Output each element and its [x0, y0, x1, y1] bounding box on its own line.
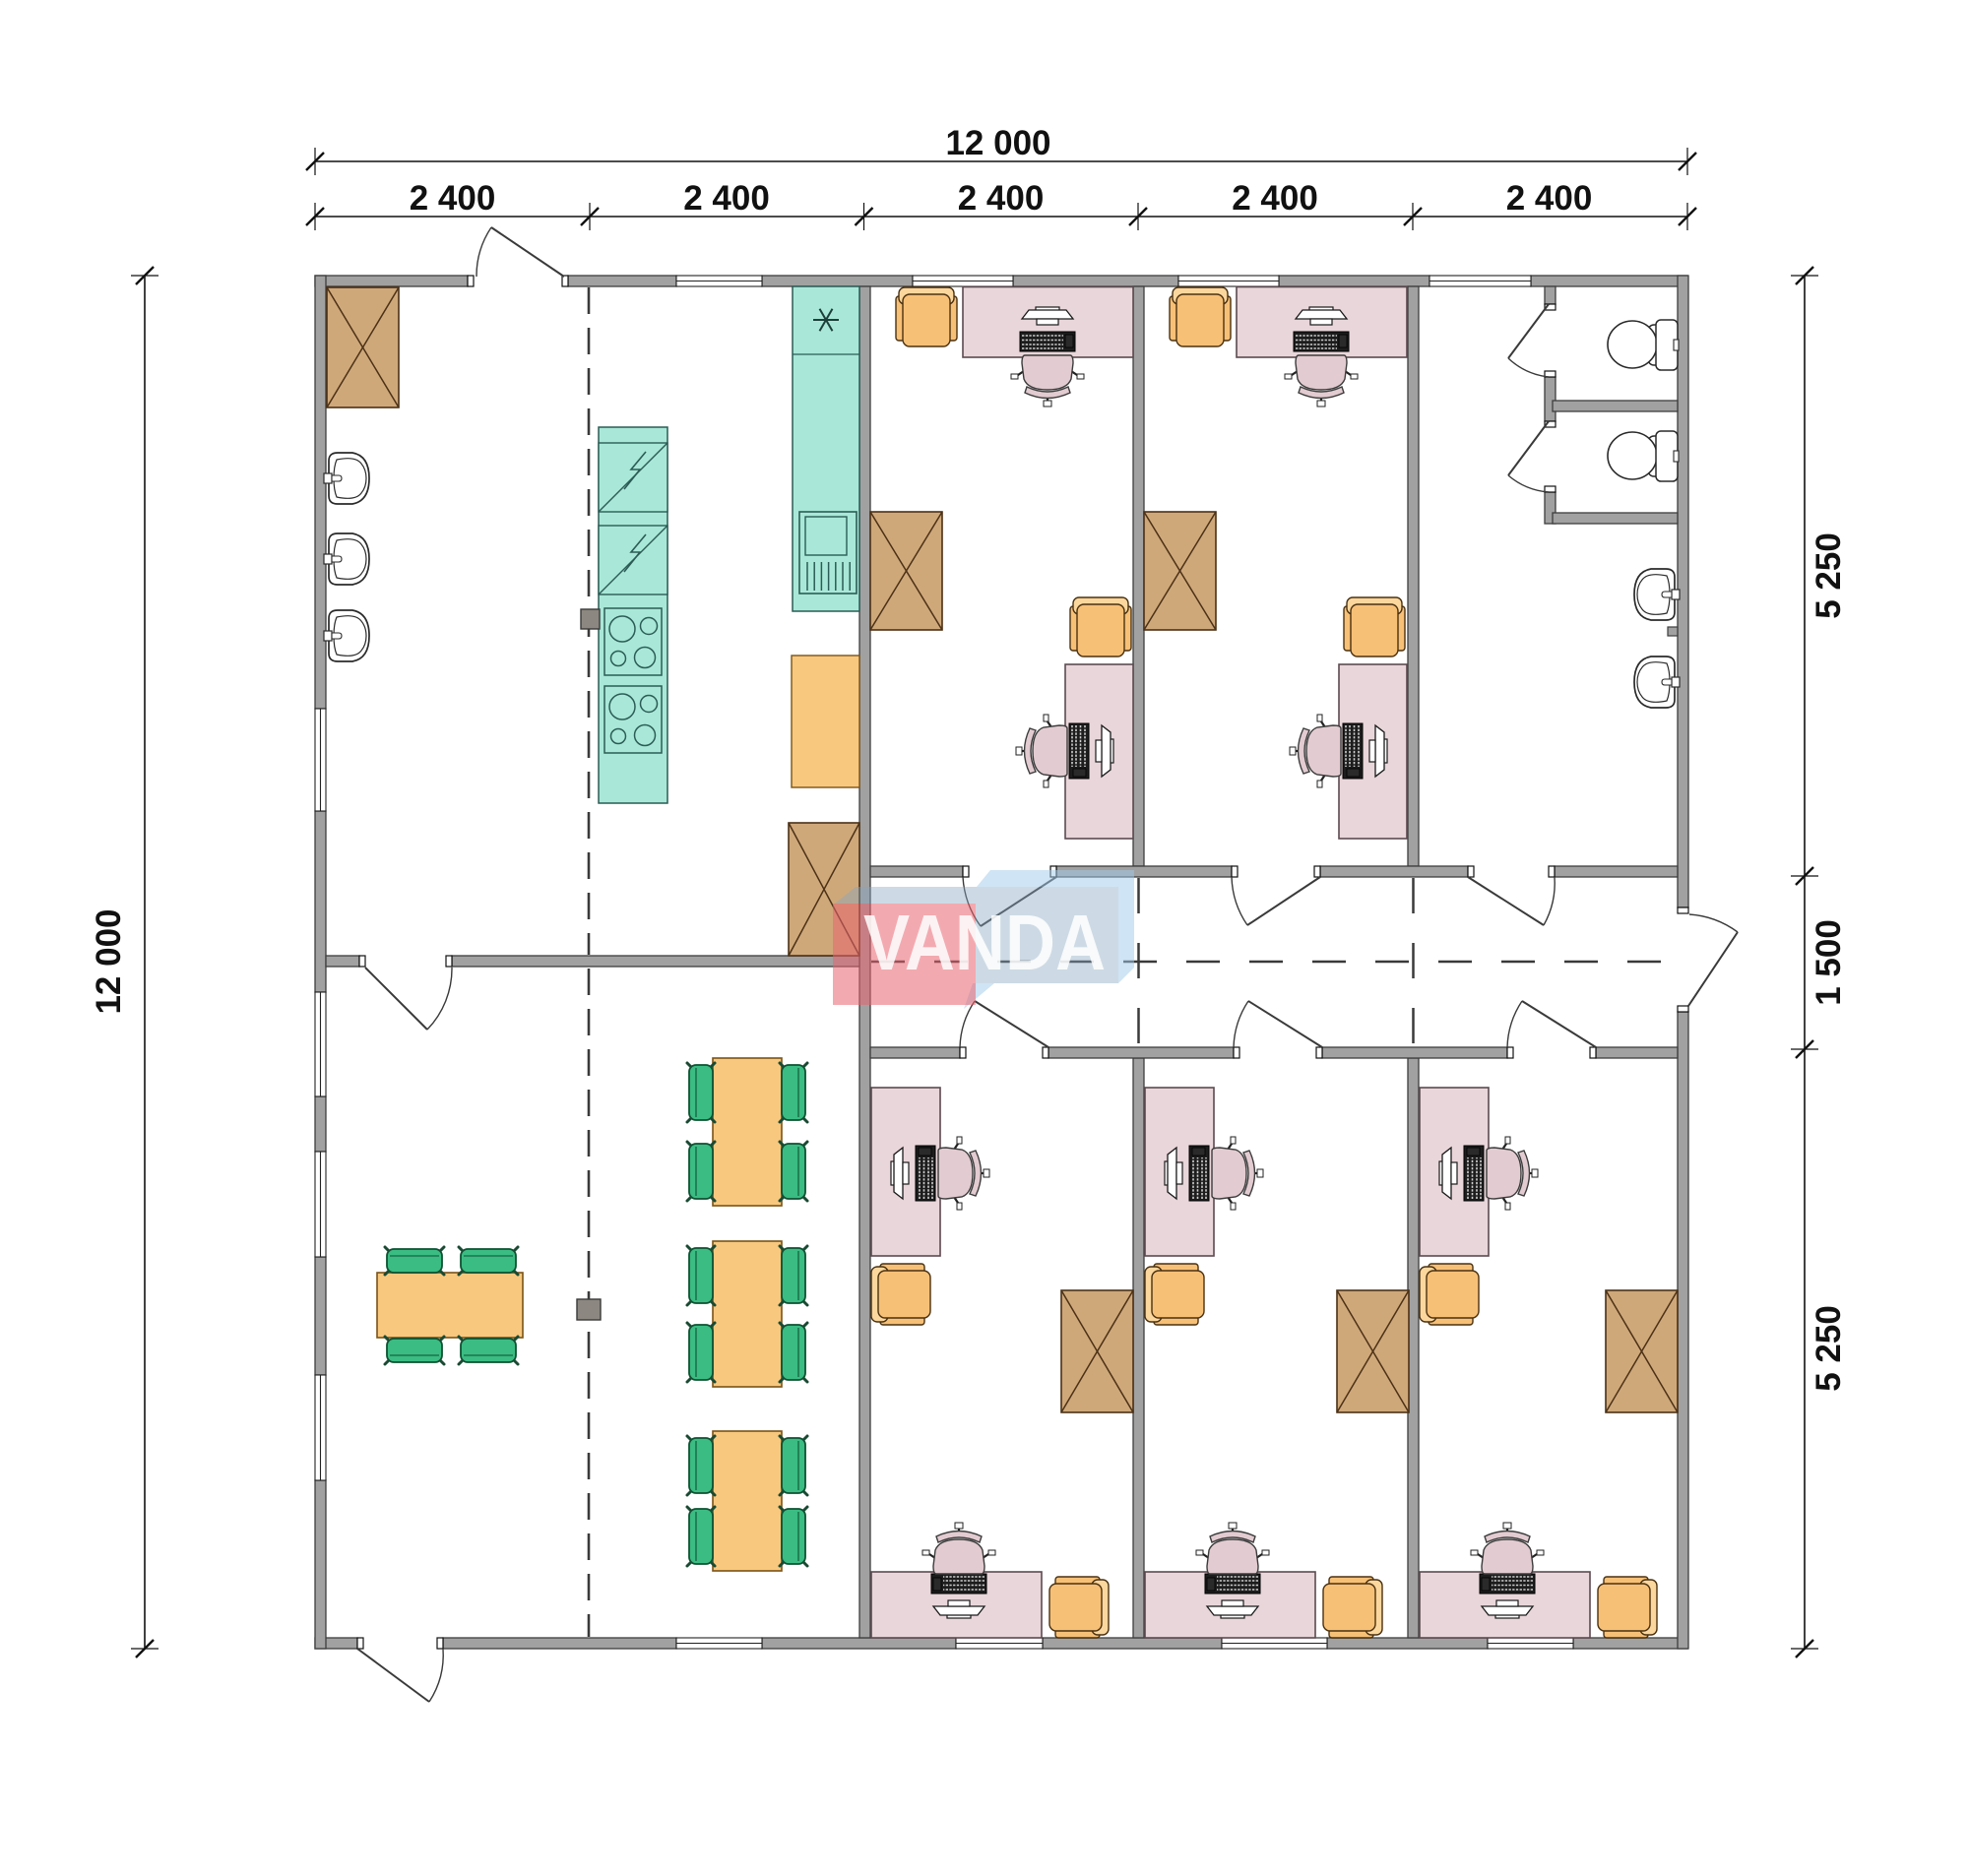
- svg-text:2 400: 2 400: [958, 179, 1045, 218]
- svg-text:2 400: 2 400: [1232, 179, 1318, 218]
- svg-text:12 000: 12 000: [945, 124, 1050, 162]
- svg-text:2 400: 2 400: [1506, 179, 1593, 218]
- svg-text:2 400: 2 400: [683, 179, 770, 218]
- svg-text:5 250: 5 250: [1810, 1305, 1848, 1392]
- svg-text:VANDA: VANDA: [863, 899, 1106, 986]
- svg-text:5 250: 5 250: [1810, 532, 1848, 619]
- svg-text:2 400: 2 400: [410, 179, 496, 218]
- svg-text:1 500: 1 500: [1810, 919, 1848, 1006]
- svg-text:12 000: 12 000: [90, 908, 128, 1014]
